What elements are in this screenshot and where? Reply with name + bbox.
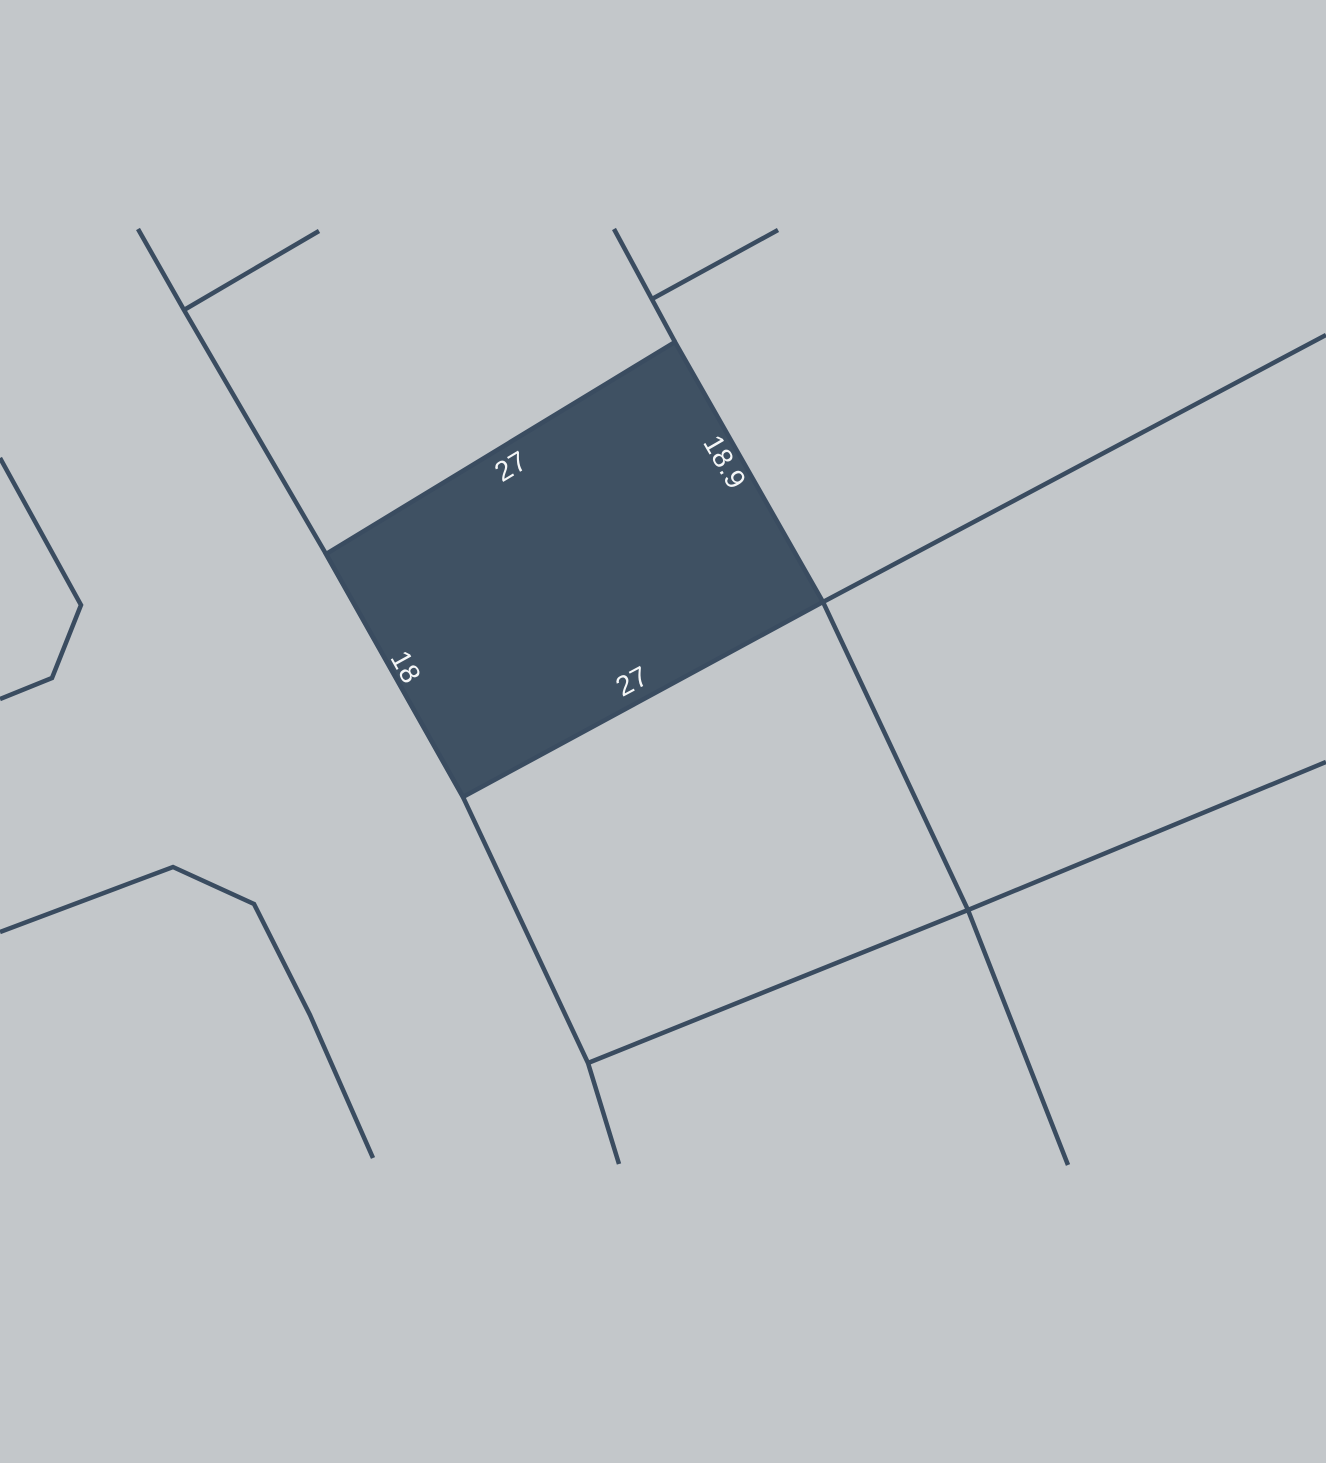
boundary-line-southeast-road xyxy=(588,762,1326,1063)
selected-parcel[interactable] xyxy=(326,342,823,797)
boundary-line-east-road xyxy=(823,335,1326,1165)
boundary-line-southwest-road xyxy=(0,867,373,1158)
boundary-line-north-branch xyxy=(614,229,675,342)
boundary-line-west-chevron xyxy=(0,458,81,699)
boundary-line-northwest-spur xyxy=(184,231,319,310)
map-svg[interactable]: 2718.91827 xyxy=(0,0,1326,1463)
boundary-line-northeast-spur xyxy=(652,230,778,299)
parcel-map-viewport[interactable]: 2718.91827 xyxy=(0,0,1326,1463)
